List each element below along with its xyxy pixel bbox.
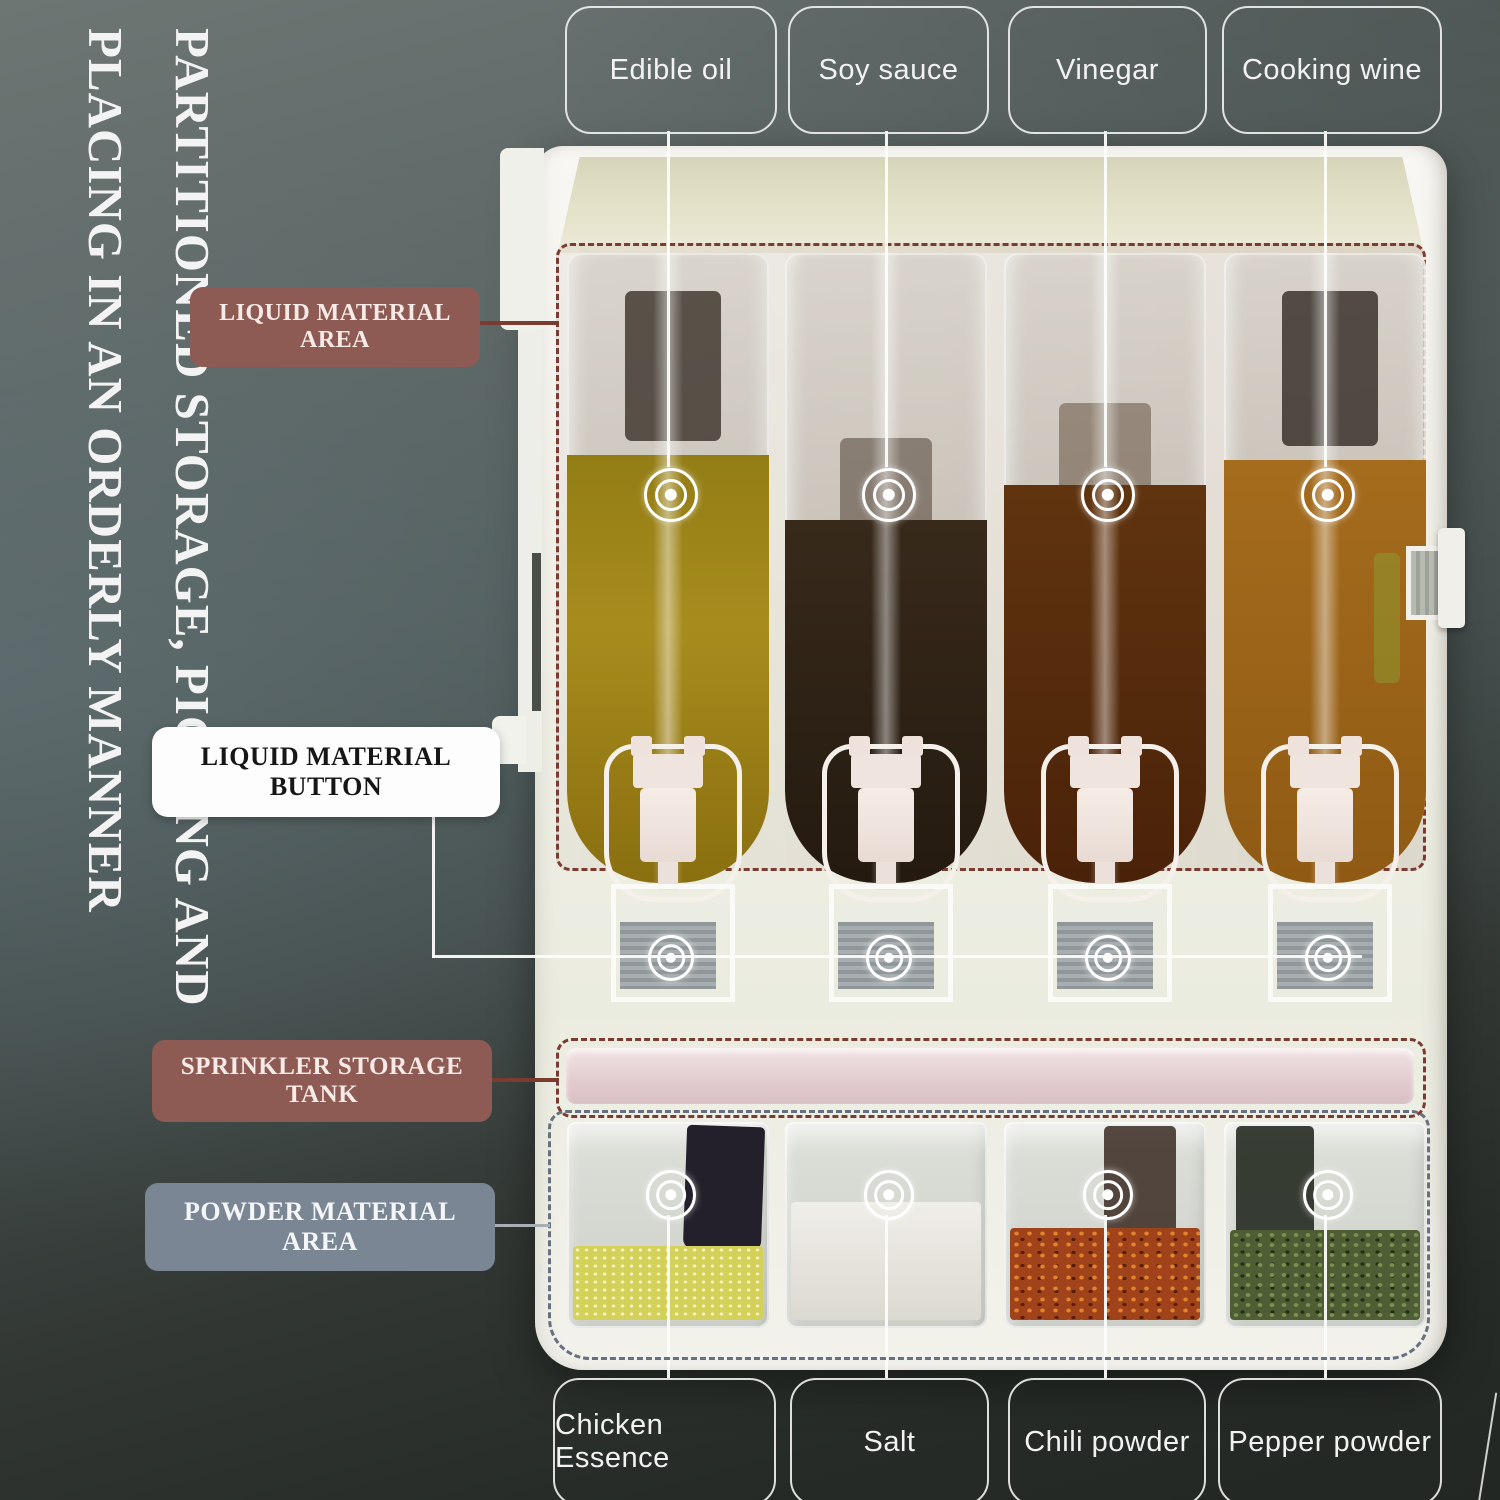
leader-powder-area xyxy=(494,1224,550,1227)
target-icon xyxy=(1081,468,1135,522)
label-text: Chicken Essence xyxy=(555,1409,774,1475)
valve-cap xyxy=(1070,754,1140,788)
valve-tab xyxy=(1341,736,1362,756)
leader-line-top xyxy=(1324,131,1327,467)
label-chili-powder: Chili powder xyxy=(1008,1378,1206,1500)
leader-line-top xyxy=(885,131,888,467)
glass-reflection-green xyxy=(1374,553,1400,683)
callout-sprinkler-storage-tank: SPRINKLER STORAGE TANK xyxy=(152,1040,492,1122)
wall-mount-plate-top xyxy=(500,148,544,330)
label-text: Salt xyxy=(864,1426,916,1459)
hanger-clip xyxy=(1438,528,1465,628)
label-chicken-essence: Chicken Essence xyxy=(553,1378,776,1500)
label-edible-oil: Edible oil xyxy=(565,6,777,134)
label-cooking-wine: Cooking wine xyxy=(1222,6,1442,134)
callout-label: LIQUID MATERIAL BUTTON xyxy=(152,742,500,802)
label-text: Pepper powder xyxy=(1228,1426,1431,1459)
photo-scratch-line xyxy=(1477,1393,1497,1500)
leader-liquid-button-h xyxy=(432,955,1362,958)
callout-label: POWDER MATERIAL AREA xyxy=(145,1197,495,1257)
callout-label: SPRINKLER STORAGE TANK xyxy=(152,1053,492,1109)
powder-material-area-outline xyxy=(548,1110,1430,1360)
label-pepper-powder: Pepper powder xyxy=(1218,1378,1442,1500)
target-icon xyxy=(1305,935,1351,981)
target-icon xyxy=(862,468,916,522)
valve-tab xyxy=(902,736,923,756)
target-icon xyxy=(1301,468,1355,522)
leader-liquid-area xyxy=(479,321,559,325)
callout-powder-material-area: POWDER MATERIAL AREA xyxy=(145,1183,495,1271)
target-icon xyxy=(644,468,698,522)
liquid-dispense-button[interactable] xyxy=(1077,788,1133,862)
label-text: Chili powder xyxy=(1024,1426,1190,1459)
sprinkler-storage-tank xyxy=(566,1048,1414,1104)
callout-label: LIQUID MATERIAL AREA xyxy=(190,300,480,354)
callout-liquid-material-button: LIQUID MATERIAL BUTTON xyxy=(152,727,500,817)
label-salt: Salt xyxy=(790,1378,989,1500)
valve-tab xyxy=(684,736,705,756)
label-text: Vinegar xyxy=(1056,54,1159,87)
target-icon xyxy=(1085,935,1131,981)
target-icon xyxy=(866,935,912,981)
valve-cap xyxy=(851,754,921,788)
label-soy-sauce: Soy sauce xyxy=(788,6,989,134)
leader-line-top xyxy=(1104,131,1107,467)
target-icon xyxy=(648,935,694,981)
valve-cap xyxy=(1290,754,1360,788)
label-text: Edible oil xyxy=(610,54,733,87)
dispenser-top-recess xyxy=(558,157,1424,253)
vertical-headline: PARTITIONED STORAGE, PICKING AND PLACING… xyxy=(62,28,236,1043)
mount-slot xyxy=(532,553,541,711)
leader-liquid-button-v xyxy=(432,816,435,958)
valve-tab xyxy=(1121,736,1142,756)
valve-tab xyxy=(849,736,870,756)
headline-line-2: PLACING IN AN ORDERLY MANNER xyxy=(62,28,149,1043)
leader-line-top xyxy=(667,131,670,467)
product-infographic: PARTITIONED STORAGE, PICKING AND PLACING… xyxy=(0,0,1500,1500)
valve-tab xyxy=(1288,736,1309,756)
label-vinegar: Vinegar xyxy=(1008,6,1207,134)
callout-liquid-material-area: LIQUID MATERIAL AREA xyxy=(190,287,480,367)
valve-tab xyxy=(631,736,652,756)
leader-sprinkler-tank xyxy=(491,1078,559,1082)
label-text: Soy sauce xyxy=(819,54,959,87)
liquid-dispense-button[interactable] xyxy=(1297,788,1353,862)
liquid-dispense-button[interactable] xyxy=(640,788,696,862)
valve-cap xyxy=(633,754,703,788)
valve-tab xyxy=(1068,736,1089,756)
liquid-dispense-button[interactable] xyxy=(858,788,914,862)
headline-line-1: PARTITIONED STORAGE, PICKING AND xyxy=(149,28,236,1043)
label-text: Cooking wine xyxy=(1242,54,1422,87)
